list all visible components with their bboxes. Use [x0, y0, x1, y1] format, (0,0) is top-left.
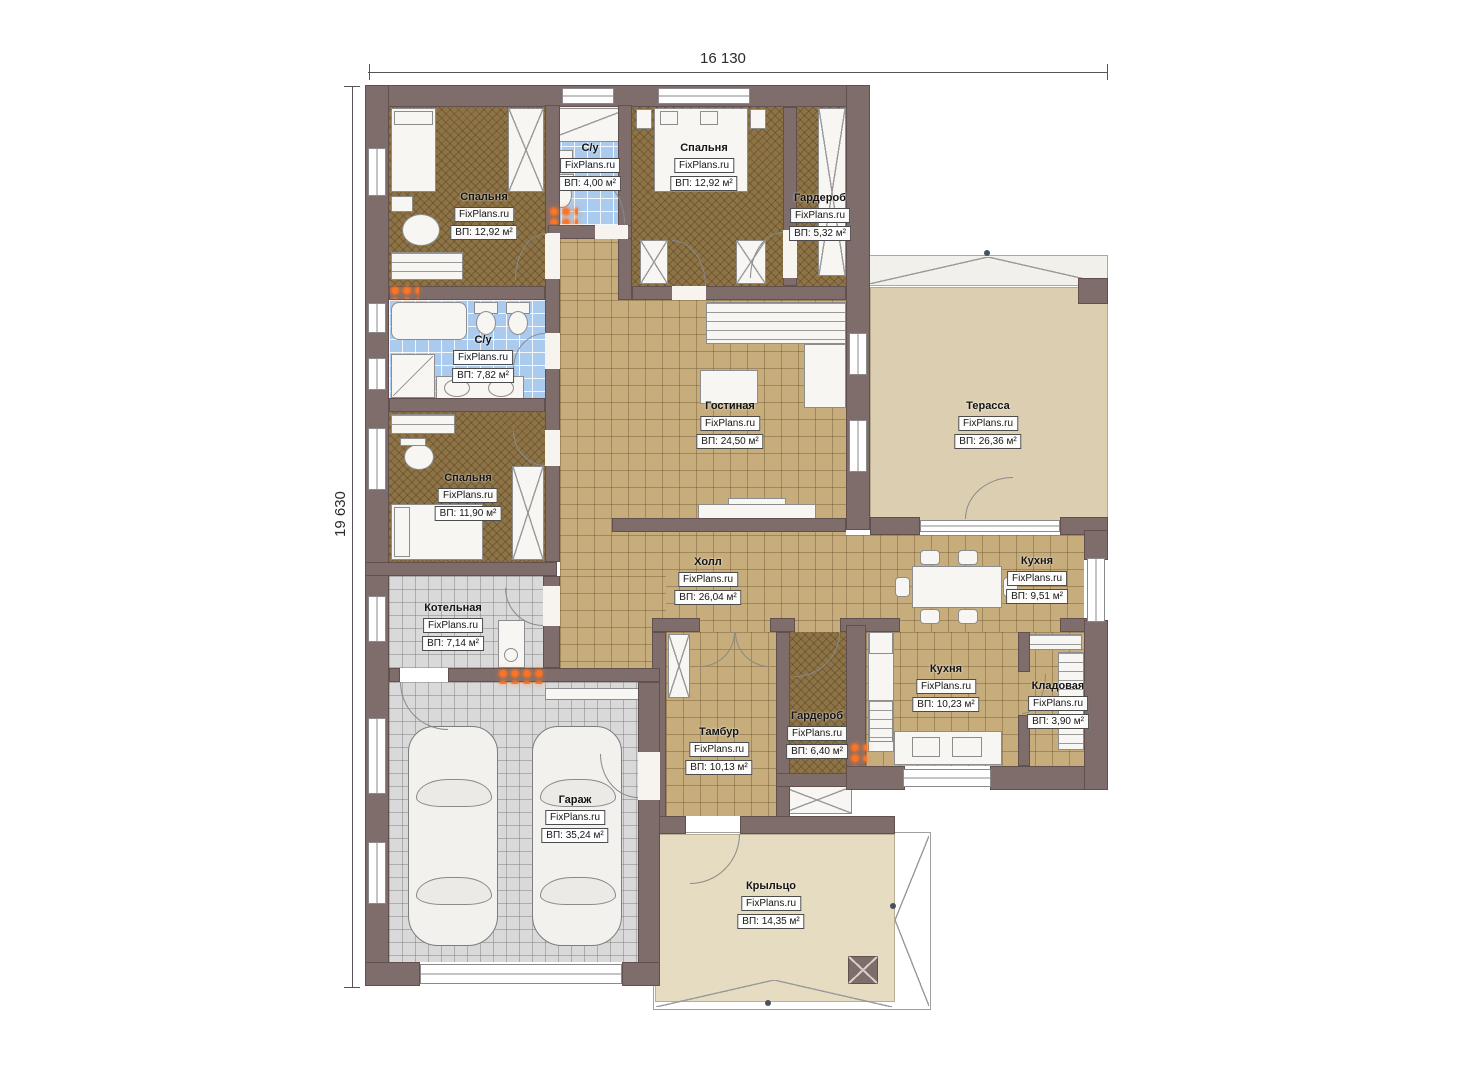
room-label-hall: Холл FixPlans.ru ВП: 26,04 м²: [674, 556, 741, 605]
dimension-line-left: [352, 86, 353, 988]
dimension-tick: [344, 987, 360, 988]
window: [562, 88, 614, 104]
shower-line: [393, 356, 433, 396]
window: [849, 333, 867, 375]
dimension-tick: [344, 86, 360, 87]
closet: [782, 786, 852, 814]
dimension-tick: [1107, 64, 1108, 80]
car-rear-window: [540, 877, 616, 905]
tv: [728, 498, 786, 505]
room-label-kitchen: Кухня FixPlans.ru ВП: 10,23 м²: [912, 663, 979, 712]
room-name: Гараж: [541, 794, 608, 807]
room-label-pantry: Кладовая FixPlans.ru ВП: 3,90 м²: [1027, 680, 1089, 729]
porch-roof-line: [656, 980, 774, 1007]
room-name: Кухня: [1006, 555, 1068, 568]
room-label-wardrobe-2: Гардероб FixPlans.ru ВП: 6,40 м²: [786, 710, 848, 759]
door-opening: [672, 286, 706, 300]
kitchen-counter: [894, 731, 1002, 765]
pillow: [394, 507, 410, 557]
room-brand: FixPlans.ru: [787, 726, 847, 741]
room-label-bedroom-2: Спальня FixPlans.ru ВП: 12,92 м²: [670, 142, 737, 191]
room-area: ВП: 9,51 м²: [1006, 589, 1068, 604]
room-name: Терасса: [954, 400, 1021, 413]
chair: [895, 577, 910, 597]
room-brand: FixPlans.ru: [674, 158, 734, 173]
window: [368, 303, 386, 333]
room-brand: FixPlans.ru: [741, 896, 801, 911]
room-area: ВП: 12,92 м²: [670, 176, 737, 191]
room-brand: FixPlans.ru: [1007, 571, 1067, 586]
heater: [389, 285, 419, 299]
wall: [622, 962, 660, 986]
room-brand: FixPlans.ru: [1028, 696, 1088, 711]
room-area: ВП: 26,04 м²: [674, 590, 741, 605]
bidet: [508, 311, 528, 335]
room-name: Котельная: [422, 602, 484, 615]
wall: [740, 816, 895, 834]
window: [368, 718, 386, 794]
porch-roof-line: [895, 920, 929, 1006]
car-rear-window: [416, 877, 492, 905]
room-label-kitchen-dining: Кухня FixPlans.ru ВП: 9,51 м²: [1006, 555, 1068, 604]
window: [368, 596, 386, 642]
roof-node-dot: [765, 1000, 771, 1006]
chair-back: [400, 438, 426, 446]
wall: [638, 682, 660, 986]
dimension-tick: [369, 64, 370, 80]
room-label-bathroom-small: С/у FixPlans.ru ВП: 4,00 м²: [559, 142, 621, 191]
window: [658, 88, 750, 104]
room-brand: FixPlans.ru: [423, 618, 483, 633]
wall: [652, 618, 700, 632]
nightstand: [750, 109, 766, 129]
room-label-living-room: Гостиная FixPlans.ru ВП: 24,50 м²: [696, 400, 763, 449]
room-label-wardrobe-1: Гардероб FixPlans.ru ВП: 5,32 м²: [789, 192, 851, 241]
porch-roof-line: [895, 836, 929, 920]
wall: [1018, 632, 1030, 672]
room-name: Кладовая: [1027, 680, 1089, 693]
stove: [869, 700, 893, 742]
room-brand: FixPlans.ru: [958, 416, 1018, 431]
wall: [365, 562, 557, 576]
room-area: ВП: 7,82 м²: [452, 368, 514, 383]
room-label-tambour: Тамбур FixPlans.ru ВП: 10,13 м²: [685, 726, 752, 775]
closet: [668, 634, 690, 698]
room-area: ВП: 14,35 м²: [737, 914, 804, 929]
room-brand: FixPlans.ru: [689, 742, 749, 757]
room-area: ВП: 6,40 м²: [786, 744, 848, 759]
kitchen-sink: [912, 737, 940, 757]
wall: [389, 668, 400, 682]
boiler-dial: [504, 648, 518, 662]
room-label-boiler-room: Котельная FixPlans.ru ВП: 7,14 м²: [422, 602, 484, 651]
wall: [365, 85, 870, 107]
dining-table: [912, 566, 1002, 608]
room-name: Кухня: [912, 663, 979, 676]
room-area: ВП: 26,36 м²: [954, 434, 1021, 449]
room-area: ВП: 35,24 м²: [541, 828, 608, 843]
roof-node-dot: [984, 250, 990, 256]
wall: [1084, 530, 1108, 560]
chair: [958, 550, 978, 565]
room-name: Крыльцо: [737, 880, 804, 893]
sofa: [706, 302, 846, 344]
bathtub-line: [552, 112, 620, 138]
pillow: [660, 111, 678, 125]
wall: [870, 517, 920, 535]
door-opening: [545, 430, 560, 466]
door-opening: [543, 586, 560, 626]
coffee-table: [700, 370, 758, 404]
shelf: [1028, 634, 1082, 650]
nightstand: [636, 109, 652, 129]
room-area: ВП: 11,90 м²: [435, 506, 502, 521]
room-name: Гардероб: [786, 710, 848, 723]
room-name: Холл: [674, 556, 741, 569]
terrace-glass-door: [920, 520, 1060, 532]
room-name: Спальня: [450, 191, 517, 204]
room-brand: FixPlans.ru: [678, 572, 738, 587]
heater: [497, 668, 543, 684]
dimension-height-label: 19 630: [332, 491, 349, 537]
room-label-porch: Крыльцо FixPlans.ru ВП: 14,35 м²: [737, 880, 804, 929]
room-label-garage: Гараж FixPlans.ru ВП: 35,24 м²: [541, 794, 608, 843]
door-opening: [638, 752, 660, 800]
room-name: Гостиная: [696, 400, 763, 413]
heater: [548, 206, 578, 224]
room-brand: FixPlans.ru: [454, 207, 514, 222]
wardrobe-cabinet: [512, 466, 544, 560]
window: [368, 428, 386, 490]
room-name: Гардероб: [789, 192, 851, 205]
dresser: [391, 414, 455, 434]
room-label-bedroom-1: Спальня FixPlans.ru ВП: 12,92 м²: [450, 191, 517, 240]
table: [402, 214, 440, 246]
dimension-line-top: [368, 72, 1108, 73]
window: [368, 842, 386, 904]
porch-post: [848, 956, 878, 984]
garage-shelf: [545, 688, 640, 700]
wardrobe-cabinet: [508, 108, 544, 192]
room-area: ВП: 24,50 м²: [696, 434, 763, 449]
floor-passage: [560, 576, 666, 672]
sofa-chaise: [804, 344, 846, 408]
room-area: ВП: 10,13 м²: [685, 760, 752, 775]
dimension-width-label: 16 130: [700, 50, 746, 67]
room-area: ВП: 3,90 м²: [1027, 714, 1089, 729]
porch-roof-line: [774, 980, 892, 1007]
room-brand: FixPlans.ru: [790, 208, 850, 223]
fridge: [869, 632, 893, 654]
dresser: [391, 252, 463, 280]
room-name: С/у: [452, 334, 514, 347]
toilet: [476, 311, 496, 335]
closet: [640, 240, 668, 284]
wall: [389, 398, 545, 412]
terrace-roof-line: [869, 257, 988, 284]
cooktop: [952, 737, 982, 757]
room-brand: FixPlans.ru: [438, 488, 498, 503]
room-brand: FixPlans.ru: [545, 810, 605, 825]
room-area: ВП: 4,00 м²: [559, 176, 621, 191]
door-opening: [545, 233, 560, 279]
window: [903, 769, 991, 787]
terrace-sliding-door: [849, 420, 867, 472]
nightstand: [391, 196, 413, 212]
window: [1087, 558, 1105, 622]
roof-node-dot: [890, 903, 896, 909]
wall: [632, 286, 846, 300]
room-label-bathroom-big: С/у FixPlans.ru ВП: 7,82 м²: [452, 334, 514, 383]
room-label-bedroom-3: Спальня FixPlans.ru ВП: 11,90 м²: [435, 472, 502, 521]
pillow: [700, 111, 718, 125]
door-opening: [595, 225, 628, 239]
room-brand: FixPlans.ru: [700, 416, 760, 431]
wall: [365, 962, 420, 986]
car-windshield: [416, 779, 492, 807]
window: [368, 148, 386, 196]
pillow: [394, 111, 433, 125]
room-name: С/у: [559, 142, 621, 155]
garage-gate: [420, 964, 622, 984]
chair: [404, 444, 434, 470]
car: [408, 726, 498, 946]
room-name: Спальня: [435, 472, 502, 485]
window: [368, 358, 386, 390]
wall: [770, 618, 795, 632]
room-area: ВП: 10,23 м²: [912, 697, 979, 712]
floor-plan: 16 130 19 630: [0, 0, 1474, 1080]
chair: [920, 609, 940, 624]
heater: [849, 742, 867, 766]
terrace-post: [1078, 278, 1108, 304]
room-brand: FixPlans.ru: [560, 158, 620, 173]
room-brand: FixPlans.ru: [453, 350, 513, 365]
room-brand: FixPlans.ru: [916, 679, 976, 694]
wall: [448, 668, 660, 682]
room-area: ВП: 7,14 м²: [422, 636, 484, 651]
door-opening: [545, 333, 560, 369]
room-label-terrace: Терасса FixPlans.ru ВП: 26,36 м²: [954, 400, 1021, 449]
chair: [958, 609, 978, 624]
room-area: ВП: 5,32 м²: [789, 226, 851, 241]
room-name: Тамбур: [685, 726, 752, 739]
room-area: ВП: 12,92 м²: [450, 225, 517, 240]
wall: [846, 766, 905, 790]
wall: [612, 518, 846, 532]
room-name: Спальня: [670, 142, 737, 155]
chair: [920, 550, 940, 565]
